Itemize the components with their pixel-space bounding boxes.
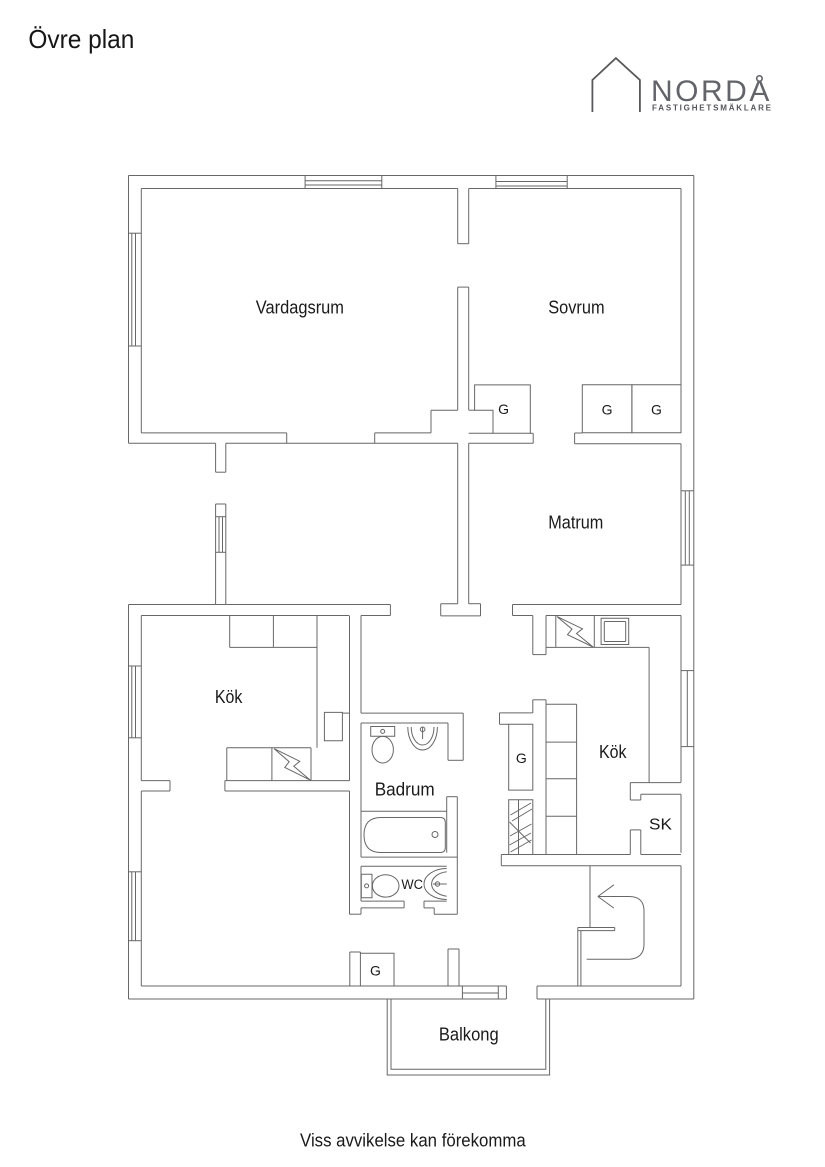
svg-text:Kök: Kök — [599, 742, 627, 762]
svg-text:G: G — [498, 401, 509, 417]
svg-text:G: G — [651, 401, 662, 417]
svg-text:Vardagsrum: Vardagsrum — [256, 298, 344, 318]
svg-text:G: G — [516, 750, 527, 766]
svg-text:Viss avvikelse kan förekomma: Viss avvikelse kan förekomma — [300, 1131, 527, 1151]
svg-text:WC: WC — [401, 877, 423, 892]
svg-text:Badrum: Badrum — [375, 779, 435, 799]
svg-text:SK: SK — [649, 816, 673, 833]
svg-text:Övre plan: Övre plan — [28, 24, 134, 54]
svg-text:G: G — [370, 963, 381, 979]
svg-text:Sovrum: Sovrum — [548, 298, 604, 318]
svg-text:Balkong: Balkong — [439, 1025, 499, 1045]
svg-text:Kök: Kök — [215, 687, 243, 707]
svg-text:FASTIGHETSMÄKLARE: FASTIGHETSMÄKLARE — [652, 103, 773, 112]
svg-text:Matrum: Matrum — [548, 513, 603, 533]
svg-text:G: G — [602, 401, 613, 417]
